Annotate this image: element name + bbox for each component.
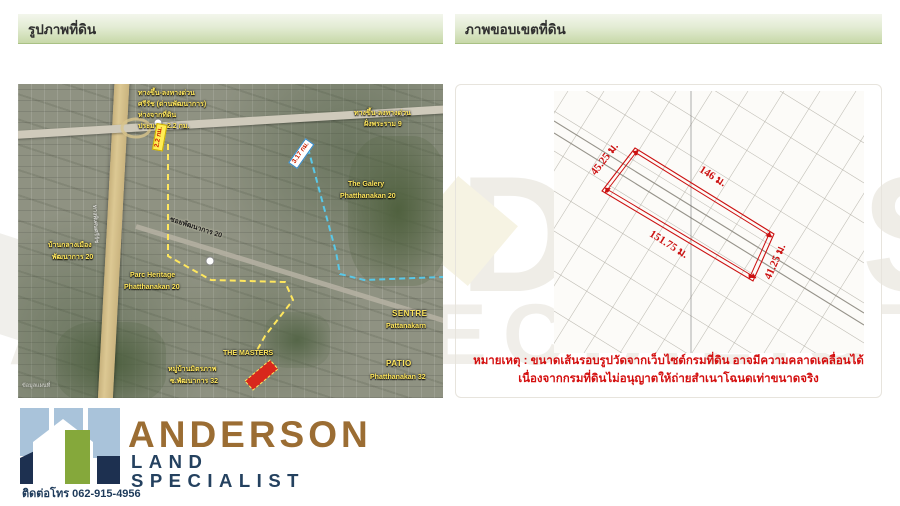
map-label-expressway-exit-2: ศรีรัช (ด่านพัฒนาการ) — [138, 101, 206, 108]
map-label-village-1: หมู่บ้านมิตรภาพ — [168, 366, 216, 373]
map-label-parc-1: Parc Heritage — [130, 272, 175, 279]
land-boundary-panel: 45.25 ม. 146 ม. 41.25 ม. 151.75 ม. หมายเ… — [455, 84, 882, 398]
company-subtitle-text: LAND SPECIALIST — [131, 453, 305, 490]
cadastral-grid-lines-b — [554, 91, 864, 353]
dimension-label-bottom: 151.75 ม. — [647, 228, 690, 261]
logo-green-tower — [65, 430, 90, 484]
logo-navy-shape-right — [97, 456, 120, 484]
cadastral-grid-lines-a — [554, 91, 864, 353]
map-route-cyan — [308, 148, 443, 280]
map-marker-mid — [206, 257, 214, 265]
map-label-galery-1: The Galery — [348, 181, 384, 188]
section-header-land-boundary-label: ภาพขอบเขตที่ดิน — [465, 18, 566, 40]
survey-note-line1: หมายเหตุ : ขนาดเส้นรอบรูปวัดจากเว็บไซต์ก… — [456, 353, 881, 371]
map-subject-parcel-highlight — [245, 360, 278, 390]
survey-note-line2: เนื่องจากกรมที่ดินไม่อนุญาตให้ถ่ายสำเนาโ… — [456, 371, 881, 389]
map-label-baan-1: บ้านกลางเมือง — [48, 242, 92, 249]
map-credit-text: ข้อมูลแผนที่ — [22, 384, 50, 390]
map-label-patio-2: Phatthanakan 32 — [370, 374, 426, 381]
map-label-expressway-exit-1: ทางขึ้น-ลงทางด่วน — [138, 90, 195, 97]
map-label-ramp-right-2: ฝั่งพระราม 9 — [364, 121, 402, 128]
map-label-expressway-exit-3: ห่างจากที่ดิน — [138, 112, 176, 119]
company-logo-icon — [20, 408, 124, 484]
section-header-land-photo: รูปภาพที่ดิน — [18, 14, 443, 44]
satellite-map-image: ทางขึ้น-ลงทางด่วน ศรีรัช (ด่านพัฒนาการ) … — [18, 84, 443, 398]
cadastral-road-lines — [554, 121, 864, 325]
contact-phone-text: ติดต่อโทร 062-915-4956 — [22, 484, 141, 502]
map-label-baan-2: พัฒนาการ 20 — [52, 254, 93, 261]
map-label-village-2: ซ.พัฒนาการ 32 — [170, 378, 218, 385]
map-label-sentre-2: Pattanakarn — [386, 323, 426, 330]
map-label-patio-1: PATIO — [386, 360, 412, 368]
section-header-land-photo-label: รูปภาพที่ดิน — [28, 18, 96, 40]
map-label-ramp-right-1: ทางขึ้น-ลงทางด่วน — [354, 110, 411, 117]
map-label-masters: THE MASTERS — [223, 350, 273, 357]
company-name-text: ANDERSON — [128, 416, 372, 453]
map-route-yellow — [168, 144, 293, 352]
cadastral-scan-image: 45.25 ม. 146 ม. 41.25 ม. 151.75 ม. — [554, 91, 864, 353]
map-label-sentre-1: SENTRE — [392, 310, 427, 318]
map-label-galery-2: Phatthanakan 20 — [340, 193, 396, 200]
section-header-land-boundary: ภาพขอบเขตที่ดิน — [455, 14, 882, 44]
dimension-label-top: 146 ม. — [697, 164, 728, 190]
map-label-parc-2: Phatthanakan 20 — [124, 284, 180, 291]
cadastral-drawing: 45.25 ม. 146 ม. 41.25 ม. 151.75 ม. — [554, 91, 864, 353]
parcel-dimension-arrows — [605, 150, 772, 279]
